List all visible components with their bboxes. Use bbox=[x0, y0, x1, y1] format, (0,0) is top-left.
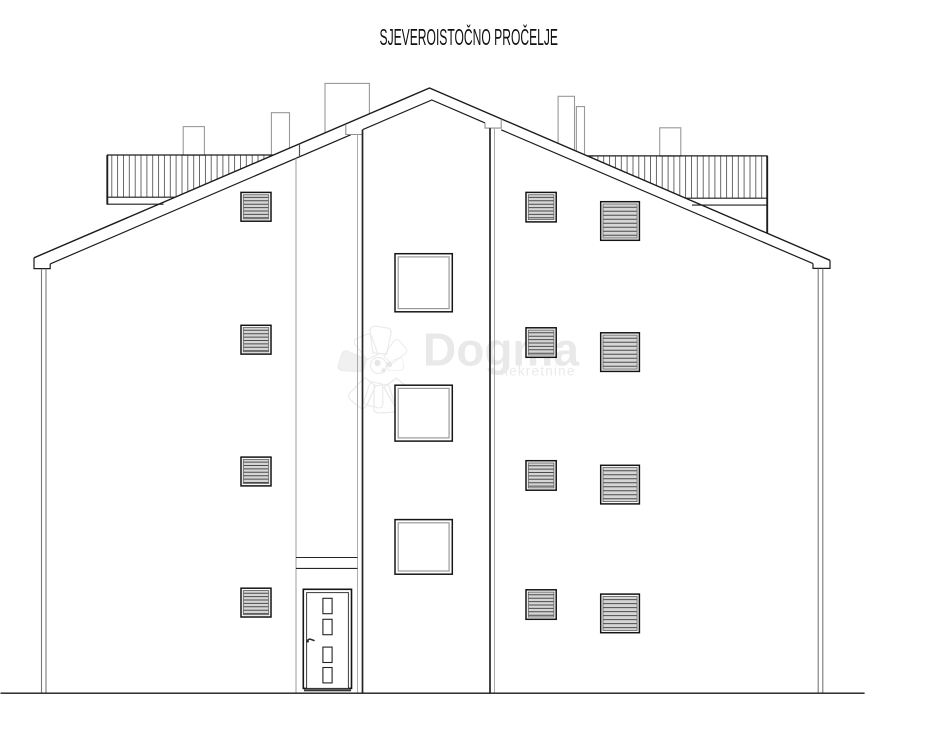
svg-text:nekretnine: nekretnine bbox=[501, 364, 576, 379]
svg-text:SJEVEROISTOČNO PROČELJE: SJEVEROISTOČNO PROČELJE bbox=[380, 24, 559, 50]
